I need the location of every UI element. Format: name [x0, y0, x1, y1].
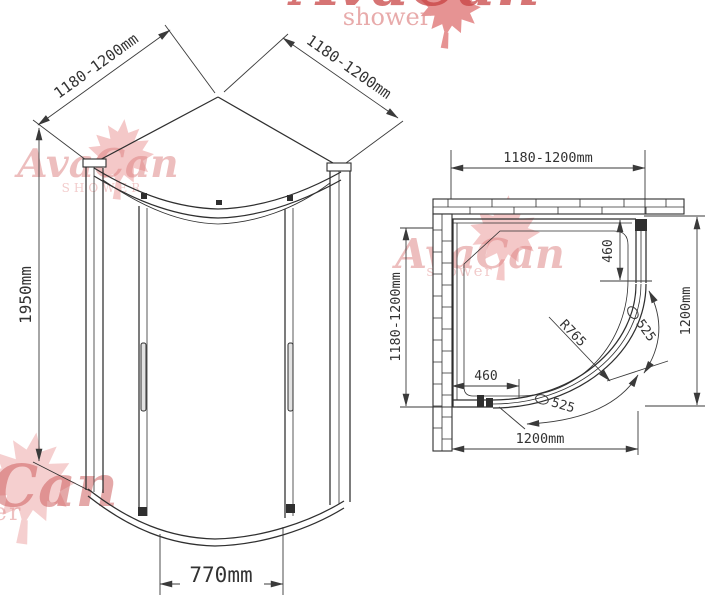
watermark-bottom-left: AvaCan shower [0, 426, 118, 550]
extension-line [346, 121, 403, 163]
dim-label-radius: R765 [556, 317, 589, 350]
left-wall [433, 214, 452, 451]
dim-label-door-arc-lower: 525 [533, 391, 576, 417]
roof-edge-right [218, 97, 340, 167]
door-arc-inner [493, 284, 636, 400]
extension-line [165, 25, 215, 93]
base-curve-top [88, 489, 344, 539]
dim-label-plan-top: 1180-1200mm [503, 150, 592, 166]
left-door-handle [141, 343, 146, 411]
svg-text:525: 525 [550, 395, 577, 416]
dim-label-panel-right: 460 [601, 239, 616, 262]
bottom-door-profile-2 [486, 398, 493, 407]
left-post-cap [83, 159, 106, 167]
dim-label-plan-left: 1180-1200mm [388, 272, 404, 361]
dim-arc-door-lower [527, 375, 638, 424]
center-rail-stop [216, 200, 222, 205]
watermark-tagline-text: shower [0, 498, 22, 526]
dim-label-panel-bottom: 460 [474, 369, 497, 384]
extension-line [224, 34, 288, 92]
plan-view: 1180-1200mm 1180-1200mm 1200mm 1200mm 46… [388, 150, 705, 455]
left-door-guide [138, 507, 147, 516]
right-wall-profile [635, 219, 647, 231]
dim-label-width-left: 1180-1200mm [50, 30, 141, 103]
bottom-door-profile [477, 395, 484, 407]
dim-label-plan-right: 1200mm [678, 287, 694, 336]
shower-enclosure-technical-drawing: AvaCan shower AvaCan SHOWER AvaCan showe… [0, 0, 719, 600]
door-arc-outer [493, 284, 646, 408]
right-post-cap [327, 163, 351, 171]
dim-label-plan-bottom: 1200mm [516, 431, 565, 447]
svg-text:525: 525 [632, 317, 658, 345]
dim-line-width-left [38, 30, 170, 125]
watermark-tagline-text: shower [343, 3, 432, 31]
dim-label-door-opening: 770mm [189, 563, 252, 587]
left-door-roller [141, 193, 147, 199]
right-door-roller [287, 195, 293, 201]
dim-label-height: 1950mm [16, 266, 35, 324]
dim-label-width-right: 1180-1200mm [303, 31, 395, 102]
right-door-handle [288, 343, 293, 411]
arc-boundary-tick [499, 407, 525, 429]
drawing-canvas: AvaCan shower AvaCan SHOWER AvaCan showe… [0, 0, 719, 600]
dim-label-door-arc-upper: 525 [623, 303, 659, 344]
right-door-guide [286, 504, 295, 513]
arc-boundary-tick [607, 361, 668, 381]
